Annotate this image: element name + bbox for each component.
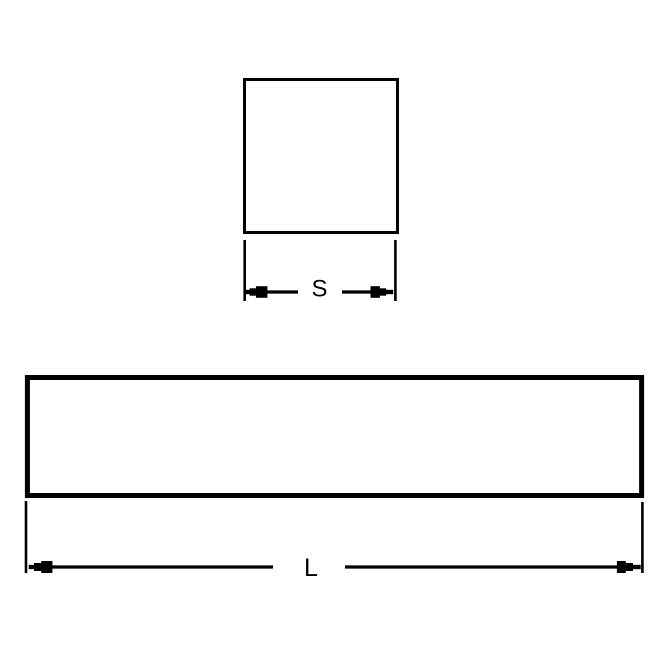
svg-text:S: S [311,275,327,302]
svg-text:L: L [304,554,318,582]
